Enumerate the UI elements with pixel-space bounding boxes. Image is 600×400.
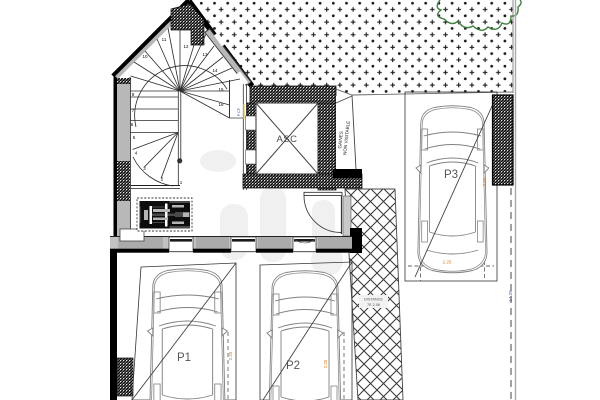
svg-text:P2: P2 [286,360,300,372]
svg-text:DISTANCE: DISTANCE [364,298,383,302]
svg-text:11: 11 [162,37,167,42]
svg-text:2.25: 2.25 [443,260,452,265]
svg-text:2.25: 2.25 [323,359,328,368]
svg-text:P3: P3 [444,169,458,181]
svg-text:13: 13 [202,52,208,57]
svg-text:P.CF: P.CF [236,107,241,116]
svg-text:16: 16 [218,102,224,107]
svg-text:5.00: 5.00 [482,177,487,186]
svg-text:P1: P1 [177,352,191,364]
svg-text:2.25: 2.25 [228,351,233,360]
svg-text:14: 14 [212,68,218,73]
svg-text:ASC: ASC [276,134,297,145]
svg-text:7E 2.06: 7E 2.06 [367,303,380,307]
svg-text:12: 12 [183,44,189,49]
svg-text:10: 10 [142,54,148,59]
svg-text:15: 15 [218,87,224,92]
svg-text:14.29: 14.29 [508,290,513,302]
